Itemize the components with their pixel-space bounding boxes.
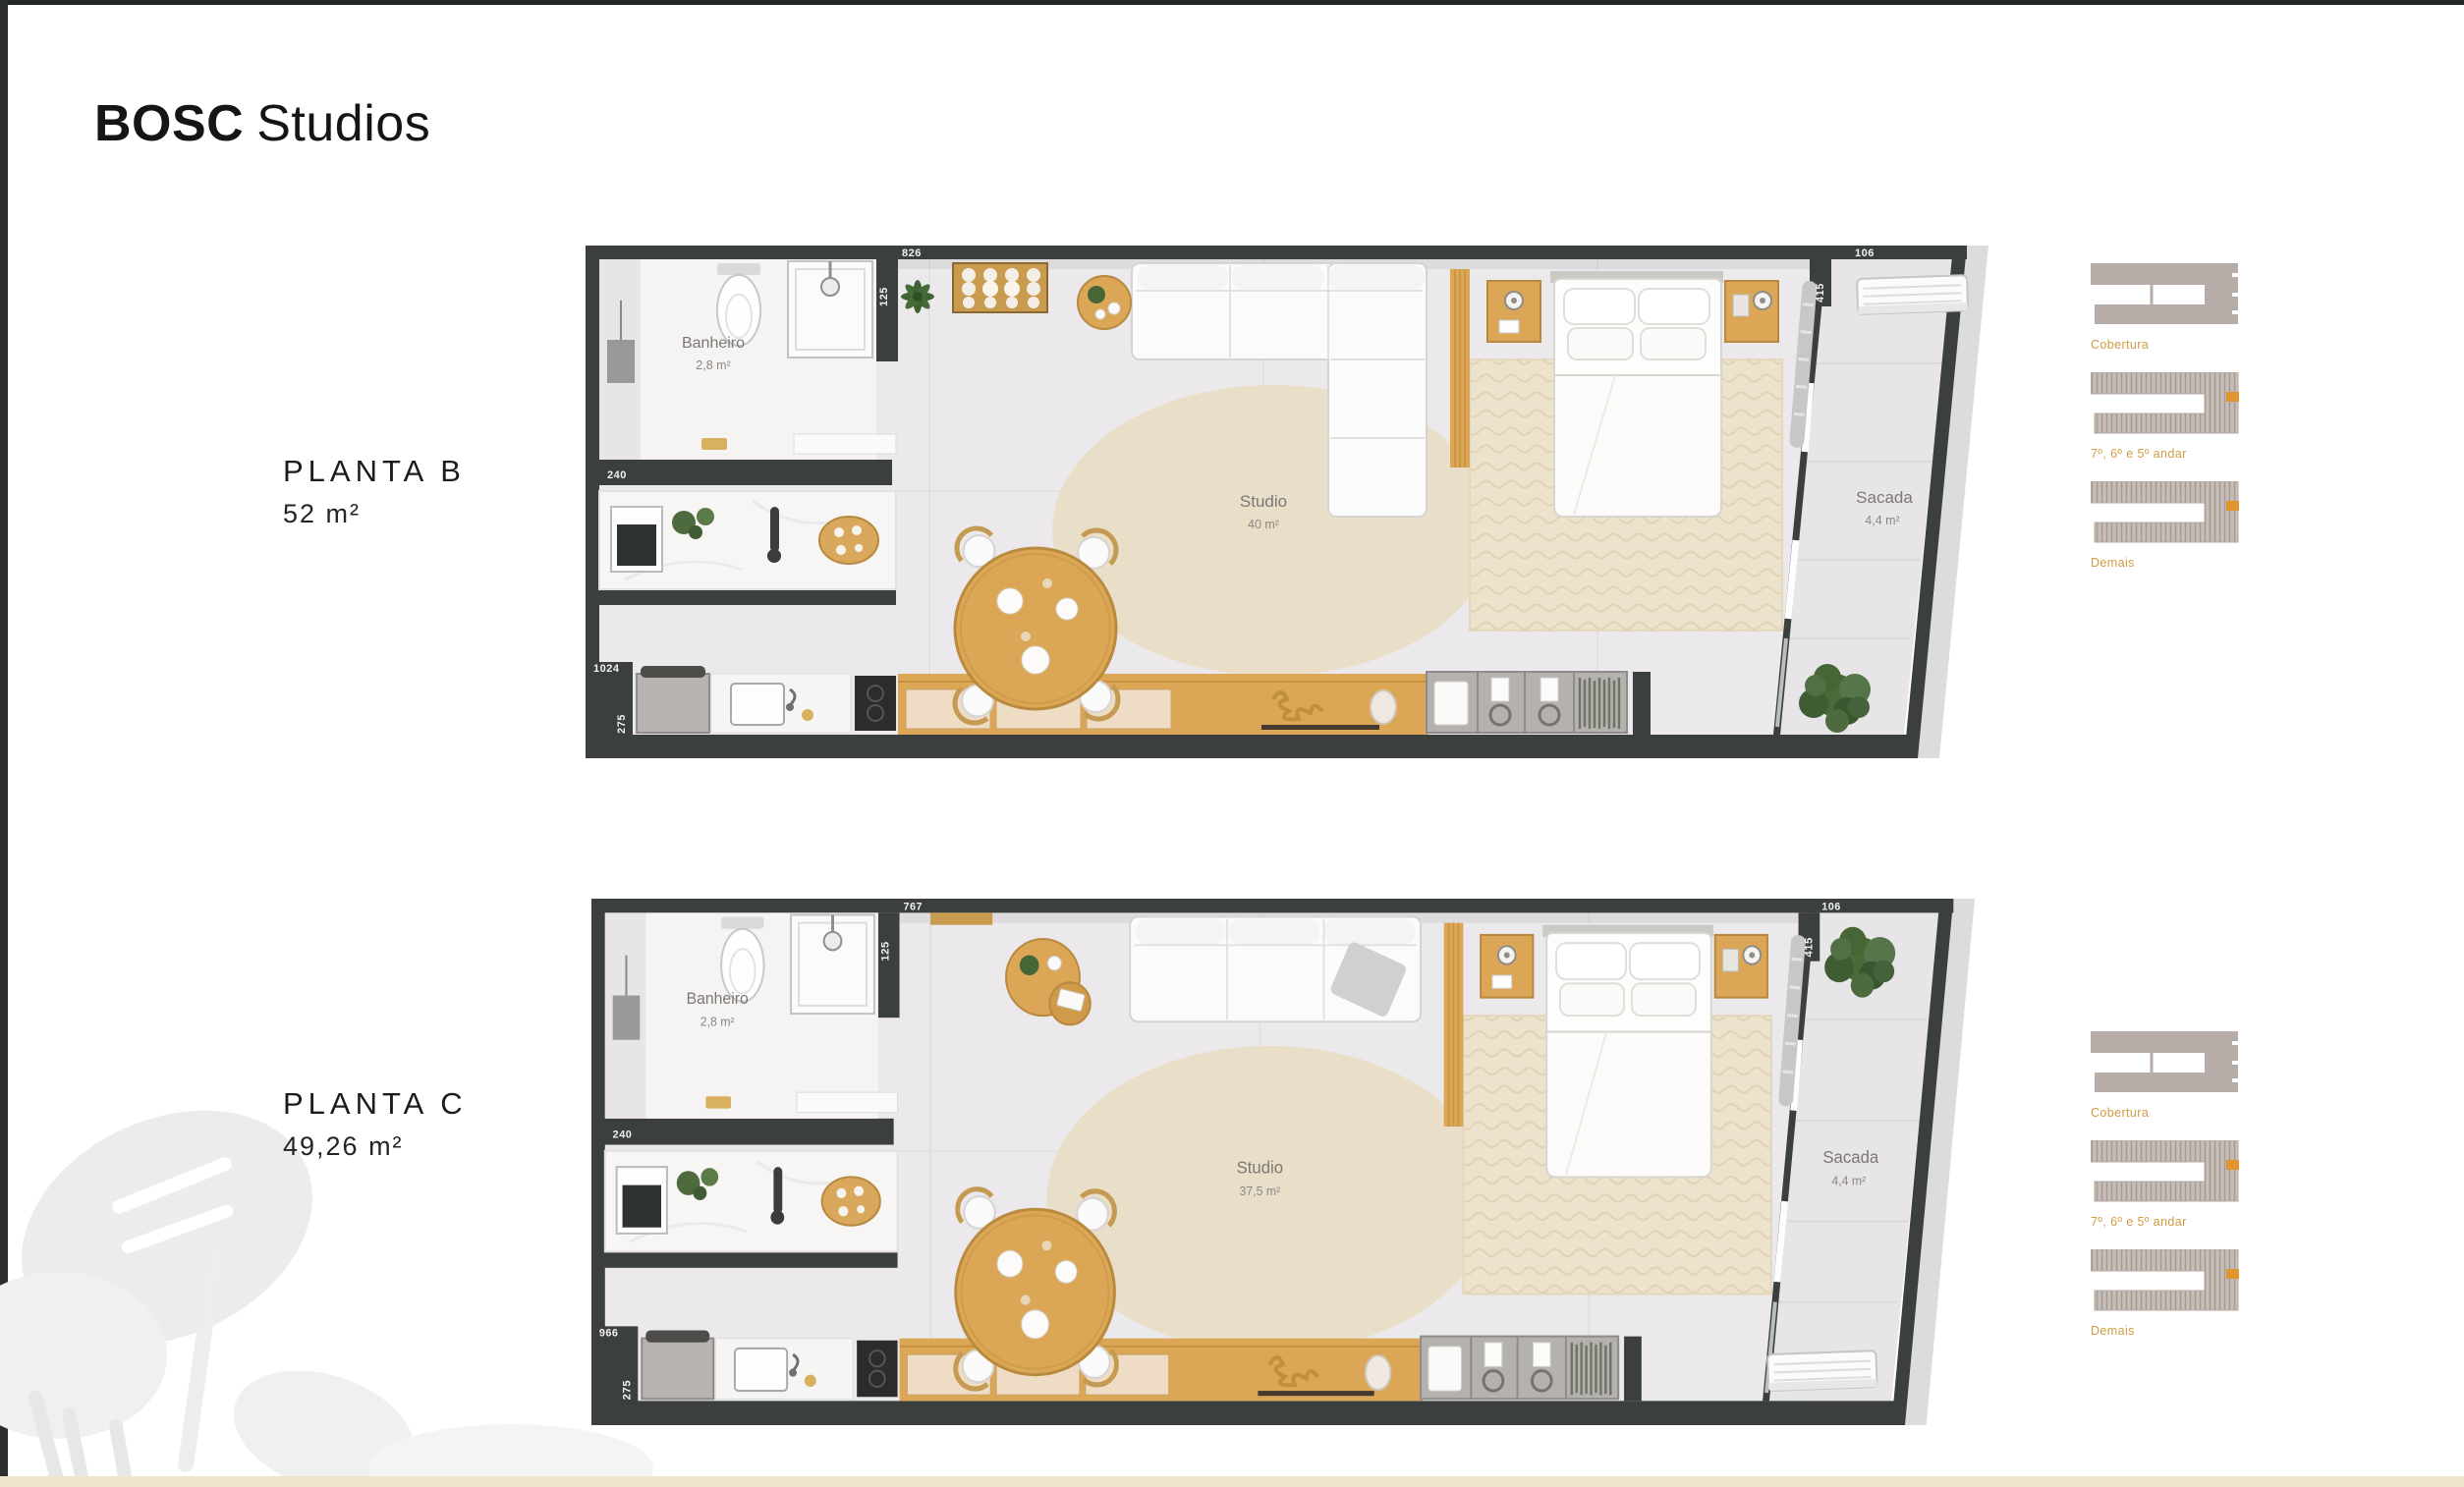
ac-unit: [1767, 1350, 1877, 1391]
ac-unit: [1857, 275, 1968, 314]
floor-key-label: Cobertura: [2091, 1106, 2248, 1120]
floor-key-item: 7º, 6º e 5º andar: [2091, 1140, 2248, 1229]
dim-balcony-wall: 415: [1804, 937, 1816, 957]
plant-icon: [901, 280, 934, 313]
floor-key-label: 7º, 6º e 5º andar: [2091, 447, 2248, 461]
plan-b-name: PLANTA B: [283, 454, 466, 489]
floor-plan-c: Banheiro 2,8 m² Studio 37,5 m² Sacada 4,…: [591, 899, 1975, 1425]
room-area-studio: 40 m²: [1248, 518, 1279, 531]
dim-bath-wall: 125: [880, 941, 892, 961]
dim-kitchen-wall: 966: [599, 1327, 619, 1339]
top-border: [0, 0, 2464, 5]
wardrobe: [1421, 1337, 1618, 1400]
floor-plan-b: Banheiro 2,8 m² Studio 40 m² Sacada 4,4 …: [586, 246, 1988, 758]
plan-c-name: PLANTA C: [283, 1086, 468, 1122]
dim-balcony-wall: 415: [1815, 283, 1826, 303]
room-area-studio: 37,5 m²: [1239, 1184, 1280, 1198]
dining-table: [948, 1181, 1125, 1397]
brand-suffix: Studios: [256, 95, 430, 152]
room-area-bathroom: 2,8 m²: [700, 1015, 735, 1028]
room-area-balcony: 4,4 m²: [1831, 1174, 1866, 1187]
floor-key-item: Cobertura: [2091, 1031, 2248, 1120]
vanity-counter: [599, 491, 896, 589]
footer-strip: [0, 1476, 2464, 1487]
floor-key-item: Demais: [2091, 481, 2248, 570]
room-label-balcony: Sacada: [1822, 1148, 1878, 1167]
floor-key-planta-c: Cobertura 7º, 6º e 5º andar Demais: [2091, 1031, 2248, 1358]
building-footprint-hatched-icon: [2091, 372, 2242, 437]
dim-balcony-top: 106: [1821, 901, 1841, 912]
wardrobe: [1427, 672, 1627, 733]
plan-c-label: PLANTA C 49,26 m²: [283, 1086, 468, 1162]
dim-bath-wall: 125: [878, 287, 890, 306]
building-footprint-solid-icon: [2091, 263, 2242, 328]
sofa: [1130, 916, 1421, 1021]
dim-kitchen-depth: 275: [622, 1380, 634, 1400]
floor-key-label: Demais: [2091, 556, 2248, 570]
dim-entry-wall: 240: [607, 469, 627, 481]
building-footprint-hatched-icon: [2091, 1140, 2242, 1205]
dim-entry-wall: 240: [613, 1129, 633, 1140]
plan-c-area: 49,26 m²: [283, 1131, 468, 1162]
building-footprint-solid-icon: [2091, 1031, 2242, 1096]
building-footprint-hatched-icon: [2091, 1249, 2242, 1314]
dim-kitchen-depth: 275: [616, 714, 628, 734]
bathroom-fixtures: [599, 259, 896, 460]
room-area-balcony: 4,4 m²: [1865, 514, 1899, 527]
wall-shelf: [930, 912, 992, 924]
room-label-balcony: Sacada: [1856, 488, 1913, 507]
dim-top-wall: 767: [903, 901, 923, 912]
room-label-bathroom: Banheiro: [682, 335, 745, 352]
dim-balcony-top: 106: [1855, 248, 1875, 259]
bed: [1444, 923, 1771, 1294]
vanity-counter: [605, 1151, 898, 1252]
left-border: [0, 0, 8, 1487]
dish-cabinet: [953, 263, 1047, 312]
floor-key-item: Demais: [2091, 1249, 2248, 1338]
brand-name: BOSC: [94, 95, 244, 152]
dining-table: [947, 521, 1126, 731]
page-title: BOSCStudios: [94, 94, 430, 153]
bathroom-fixtures: [605, 912, 898, 1118]
floor-key-item: Cobertura: [2091, 263, 2248, 352]
side-table: [1078, 276, 1131, 329]
plan-b-label: PLANTA B 52 m²: [283, 454, 466, 529]
plan-b-area: 52 m²: [283, 499, 466, 529]
dim-kitchen-wall: 1024: [593, 663, 620, 675]
room-label-bathroom: Banheiro: [687, 990, 749, 1008]
floor-key-label: Demais: [2091, 1324, 2248, 1338]
dim-top-wall: 826: [902, 248, 922, 259]
floor-key-item: 7º, 6º e 5º andar: [2091, 372, 2248, 461]
building-footprint-hatched-icon: [2091, 481, 2242, 546]
room-label-studio: Studio: [1240, 492, 1287, 511]
room-area-bathroom: 2,8 m²: [696, 358, 730, 372]
floor-key-planta-b: Cobertura 7º, 6º e 5º andar Demais: [2091, 263, 2248, 590]
room-label-studio: Studio: [1237, 1158, 1284, 1177]
bed: [1450, 269, 1782, 631]
floor-key-label: 7º, 6º e 5º andar: [2091, 1215, 2248, 1229]
floor-key-label: Cobertura: [2091, 338, 2248, 352]
